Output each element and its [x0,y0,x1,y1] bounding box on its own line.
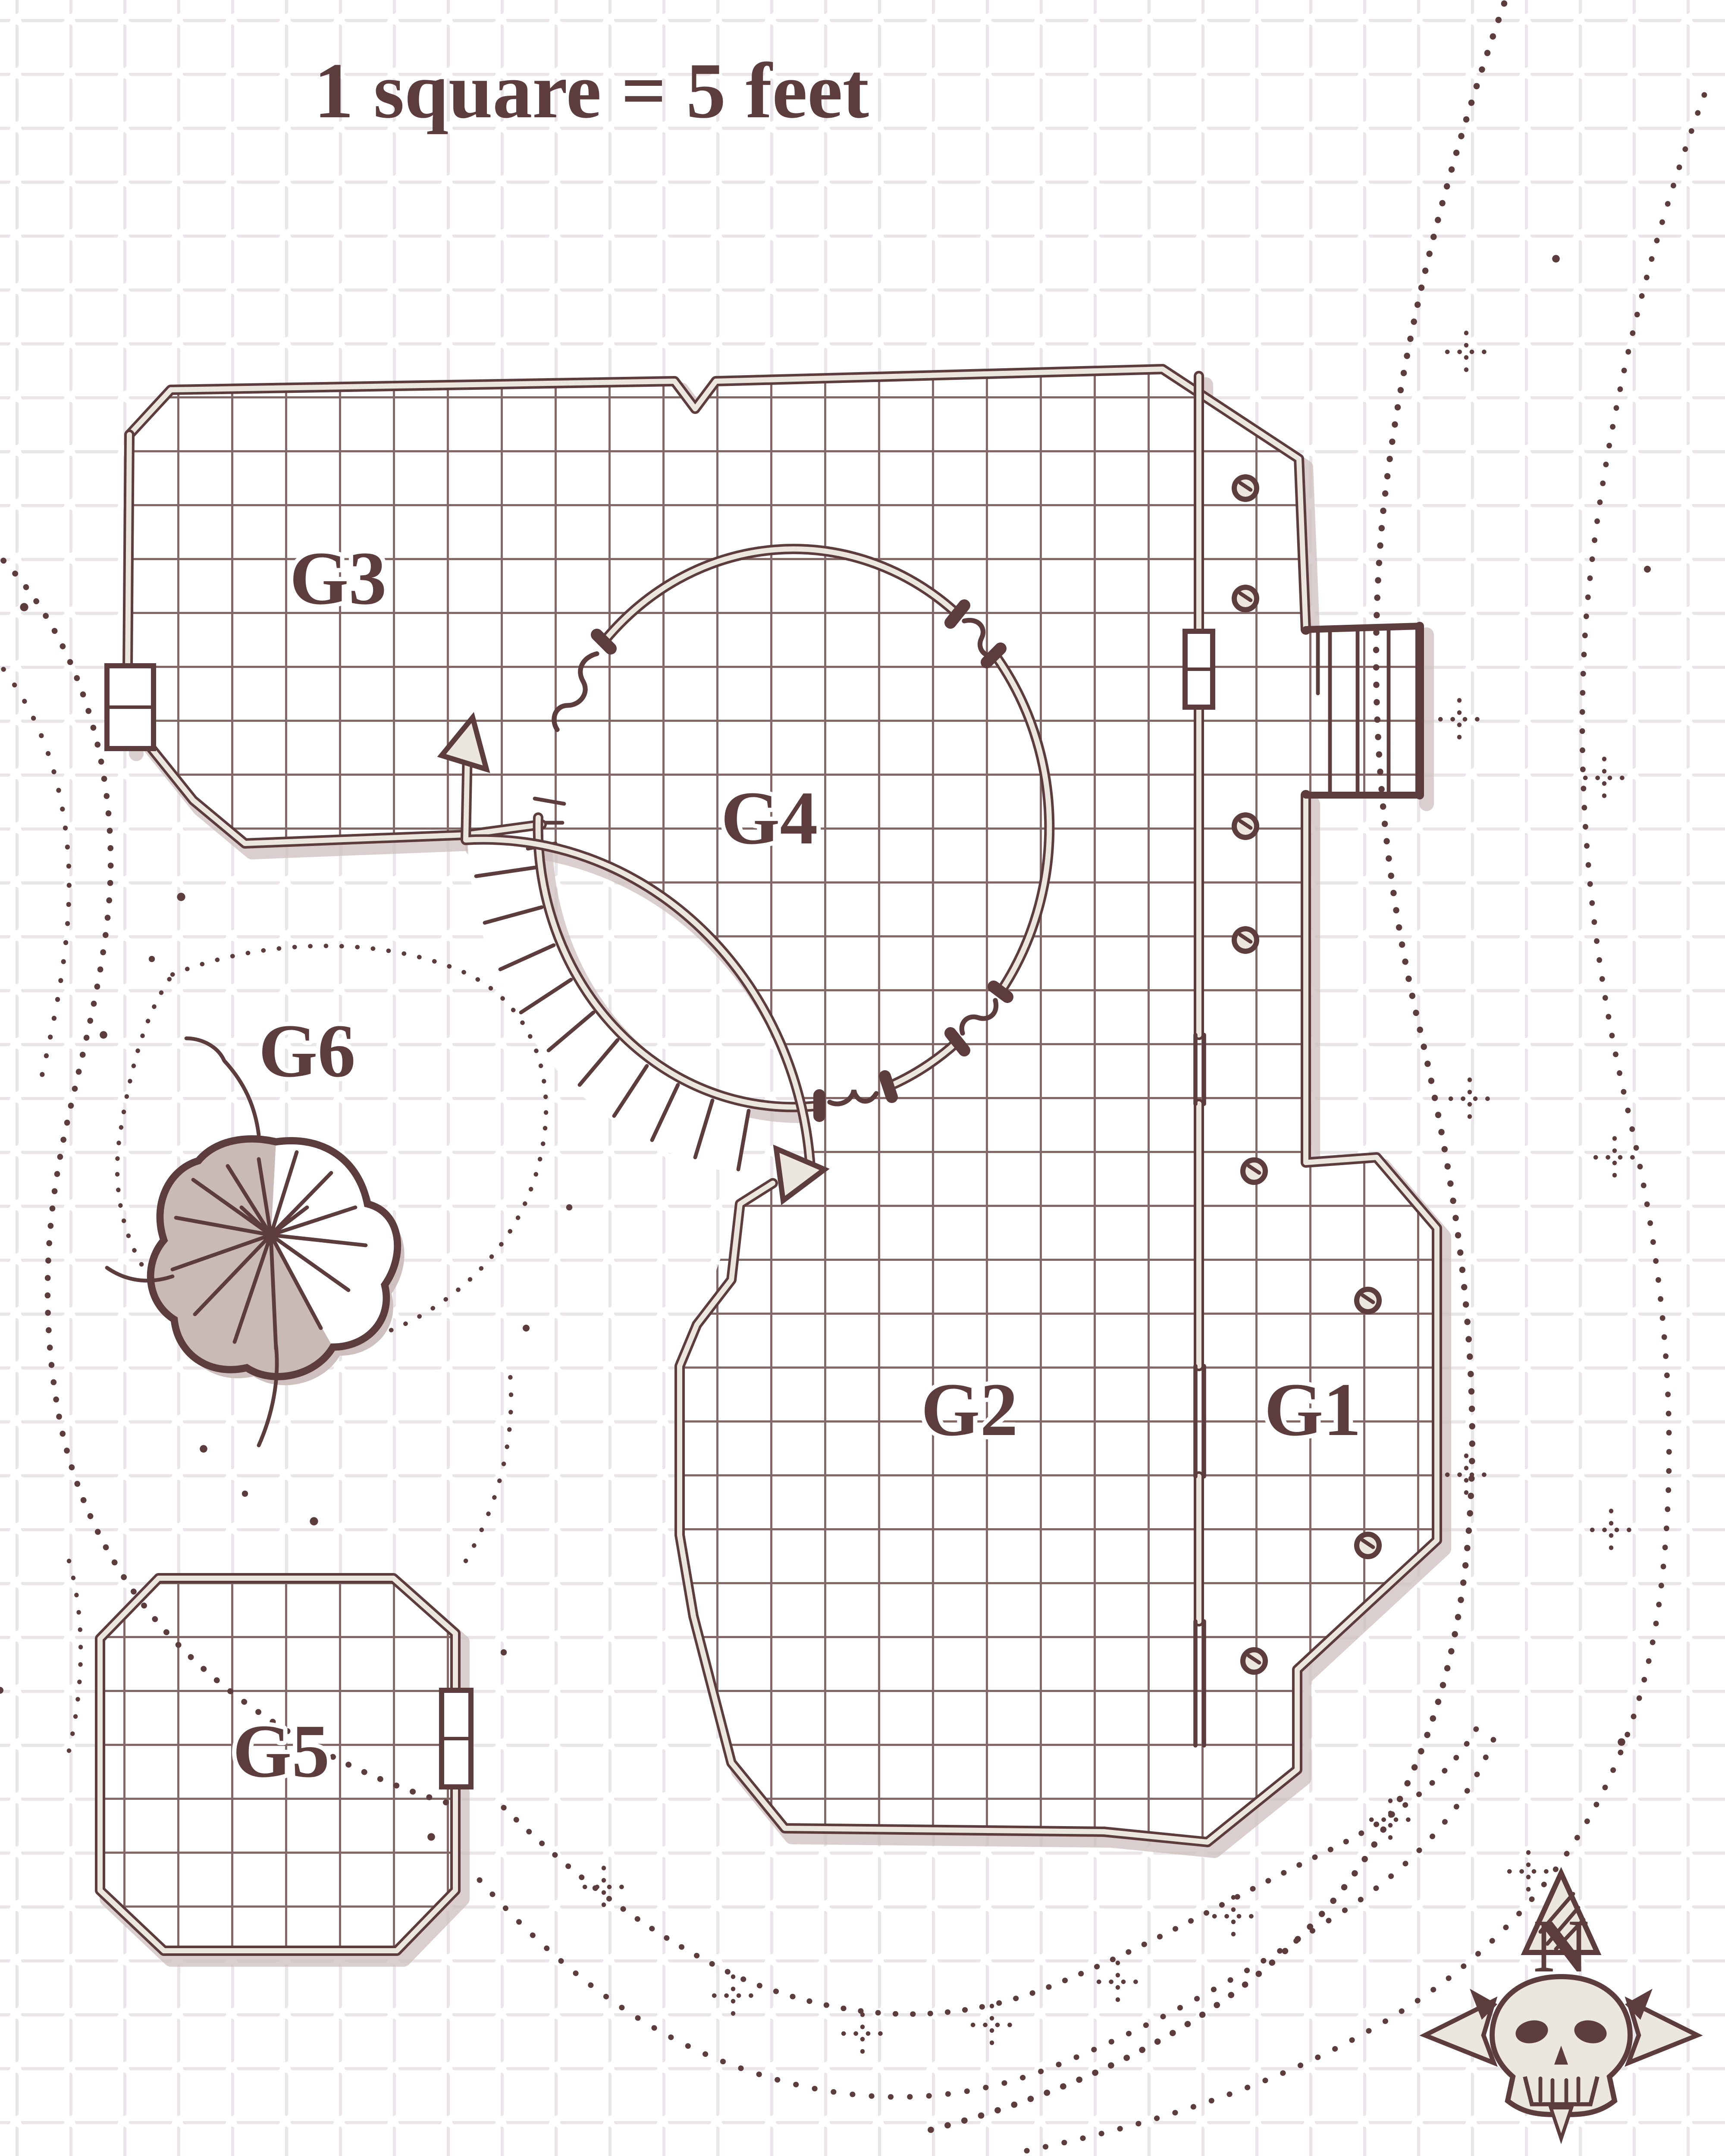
room-label-g6: G6 [259,1009,356,1093]
room-label-g2: G2 [921,1368,1018,1452]
dungeon-map-page: 1 square = 5 feet G3 G4 G6 G2 G1 G5 N [0,0,1725,2156]
room-label-g4: G4 [721,776,818,860]
door-g3-west [107,666,154,749]
room-label-g3: G3 [290,536,387,620]
room-label-g1: G1 [1264,1368,1361,1452]
compass-north-label: N [1534,1904,1588,1988]
dungeon-map: 1 square = 5 feet G3 G4 G6 G2 G1 G5 N [0,0,1725,2156]
room-label-g5: G5 [233,1709,330,1793]
scale-legend: 1 square = 5 feet [314,47,869,135]
door-corridor [1185,631,1213,707]
door-g5-east [442,1690,471,1787]
